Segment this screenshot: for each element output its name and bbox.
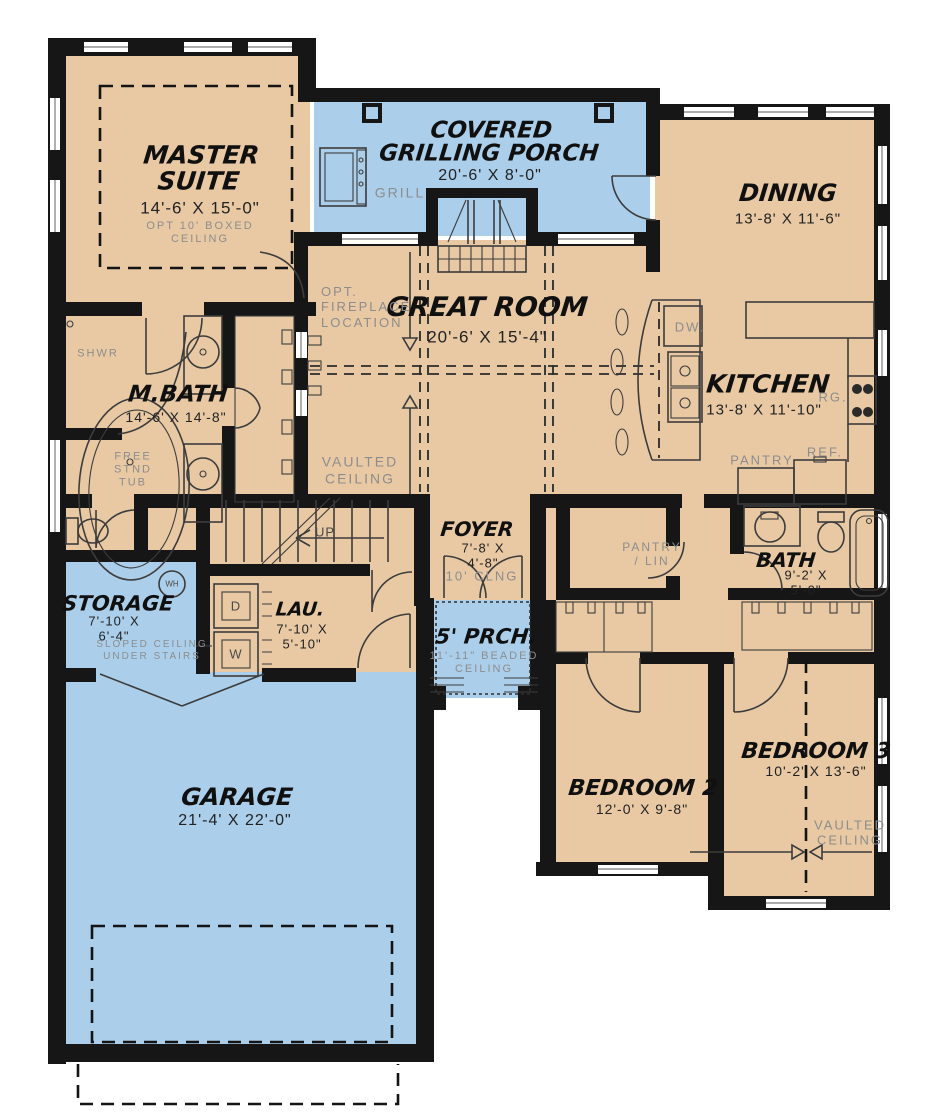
room-dims-grilling-porch: 20'-6' X 8'-0" bbox=[438, 167, 542, 185]
stairs-up-label: UP bbox=[315, 525, 335, 540]
room-label-storage: STORAGE bbox=[61, 593, 175, 614]
room-dims-bath: 9'-2' X 5'-0" bbox=[777, 568, 835, 597]
room-label-garage: GARAGE bbox=[180, 785, 294, 809]
room-dims-dining: 13'-8' X 11'-6" bbox=[735, 212, 841, 229]
tub-label: FREE STND TUB bbox=[110, 451, 156, 490]
room-label-bedroom2: BEDROOM 2 bbox=[567, 778, 719, 800]
room-dims-master-suite: 14'-6' X 15'-0" bbox=[140, 198, 260, 217]
room-dims-garage: 21'-4' X 22'-0" bbox=[178, 812, 291, 830]
room-label-front-porch: 5' PRCH. bbox=[434, 626, 537, 647]
note-vaulted-great-room: VAULTED CEILING bbox=[310, 453, 410, 486]
room-dims-master-bath: 14'-6' X 14'-8" bbox=[125, 410, 226, 426]
room-note-front-porch: 11'-11" BEADED CEILING bbox=[429, 650, 539, 676]
room-label-bedroom3: BEDROOM 3 bbox=[740, 741, 892, 763]
dishwasher-label: DW. bbox=[675, 319, 706, 334]
driveway-outline bbox=[78, 1064, 398, 1104]
room-label-kitchen: KITCHEN bbox=[705, 371, 831, 397]
pantry-label: PANTRY bbox=[730, 452, 794, 467]
room-label-master-suite: MASTER SUITE bbox=[122, 143, 277, 194]
room-label-dining: DINING bbox=[738, 181, 838, 205]
room-note-master-suite: OPT 10' BOXED CEILING bbox=[130, 220, 270, 246]
range-label: RG. bbox=[818, 389, 847, 404]
room-note-foyer: 10' CLNG bbox=[446, 568, 519, 583]
room-label-grilling-porch: COVERED GRILLING PORCH bbox=[363, 120, 618, 167]
room-note-storage: SLOPED CEILING UNDER STAIRS bbox=[92, 639, 212, 663]
dryer-label: D bbox=[231, 599, 241, 614]
note-vaulted-bedroom3: VAULTED CEILING bbox=[805, 818, 895, 849]
room-label-foyer: FOYER bbox=[440, 519, 515, 539]
room-dims-foyer: 7'-8' X 4'-8" bbox=[450, 541, 516, 570]
note-opt-fireplace: OPT. FIREPLACE LOCATION bbox=[321, 284, 431, 330]
room-label-laundry: LAU. bbox=[275, 600, 326, 619]
room-label-pantry-lin: PANTRY / LIN bbox=[618, 540, 686, 568]
room-label-master-bath: M.BATH bbox=[127, 383, 229, 406]
room-dims-laundry: 7'-10' X 5'-10" bbox=[268, 622, 336, 651]
water-heater-label: WH bbox=[165, 580, 178, 589]
grill-label: GRILL bbox=[375, 185, 425, 202]
room-dims-bedroom3: 10'-2' X 13'-6" bbox=[765, 764, 866, 780]
refrigerator-label: REF. bbox=[807, 444, 843, 459]
room-dims-bedroom2: 12'-0' X 9'-8" bbox=[596, 802, 688, 818]
room-dims-great-room: 20'-6' X 15'-4" bbox=[427, 327, 547, 346]
washer-label: W bbox=[229, 647, 242, 662]
shower-label: SHWR bbox=[77, 348, 119, 361]
room-dims-kitchen: 13'-8' X 11'-10" bbox=[706, 403, 822, 420]
floor-plan: MASTER SUITE 14'-6' X 15'-0" OPT 10' BOX… bbox=[0, 0, 950, 1118]
